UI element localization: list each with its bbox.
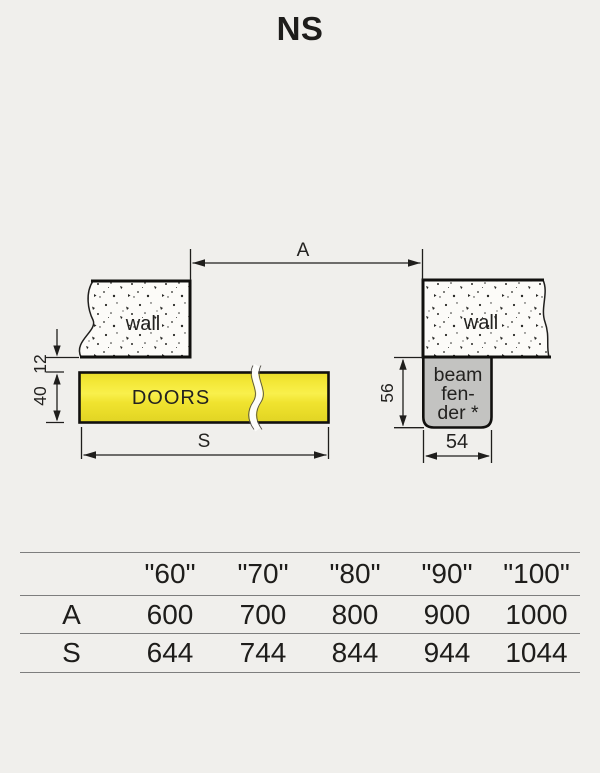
arrow-left-icon [84, 451, 97, 458]
table-header-cell: "60" [123, 558, 217, 590]
table-cell: 600 [123, 599, 217, 631]
table-cell: 800 [309, 599, 401, 631]
table-header-cell: "80" [309, 558, 401, 590]
dim-a-label: A [297, 240, 310, 261]
table-header-cell: "100" [493, 558, 580, 590]
technical-diagram: wall DOORS beam fen- der * wall A [0, 0, 600, 500]
row-label: A [20, 599, 123, 631]
wall-left: wall [79, 280, 191, 359]
table-cell: 644 [123, 637, 217, 669]
dim-54-label: 54 [446, 431, 468, 453]
doors-bar: DOORS [80, 366, 329, 430]
dimension-a: A [191, 240, 423, 280]
arrow-right-icon [478, 452, 490, 459]
row-label: S [20, 637, 123, 669]
beam-fender: beam fen- der * [423, 357, 491, 428]
table-cell: 700 [217, 599, 309, 631]
arrow-down-icon [53, 346, 60, 357]
table-cell: 900 [401, 599, 493, 631]
wall-right-label: wall [463, 312, 498, 334]
arrow-down-icon [399, 415, 406, 426]
table-header-row: "60" "70" "80" "90" "100" [20, 552, 580, 595]
doors-label: DOORS [132, 387, 210, 409]
arrow-right-icon [314, 451, 327, 458]
dim-12-label: 12 [30, 354, 50, 373]
table-row: A 600 700 800 900 1000 [20, 595, 580, 633]
table-header-cell: "70" [217, 558, 309, 590]
dim-56-label: 56 [377, 383, 397, 402]
dimension-54: 54 [424, 430, 492, 463]
table-cell: 744 [217, 637, 309, 669]
table-cell: 844 [309, 637, 401, 669]
table-cell: 944 [401, 637, 493, 669]
beam-fender-label-line3: der * [437, 402, 479, 424]
wall-left-label: wall [125, 313, 160, 335]
dim-s-label: S [198, 431, 211, 452]
arrow-left-icon [425, 452, 437, 459]
arrow-down-icon [53, 411, 60, 422]
arrow-right-icon [408, 259, 421, 266]
size-table: "60" "70" "80" "90" "100" A 600 700 800 … [20, 552, 580, 673]
dimension-s: S [82, 427, 329, 459]
arrow-left-icon [193, 259, 206, 266]
table-cell: 1000 [493, 599, 580, 631]
table-row: S 644 744 844 944 1044 [20, 633, 580, 673]
arrow-up-icon [399, 359, 406, 370]
dim-40-label: 40 [30, 386, 50, 406]
dimension-56: 56 [377, 358, 424, 428]
arrow-up-icon [53, 374, 60, 385]
dimension-12-40: 12 40 [30, 329, 79, 423]
table-cell: 1044 [493, 637, 580, 669]
wall-right: wall [422, 279, 552, 359]
table-header-cell: "90" [401, 558, 493, 590]
